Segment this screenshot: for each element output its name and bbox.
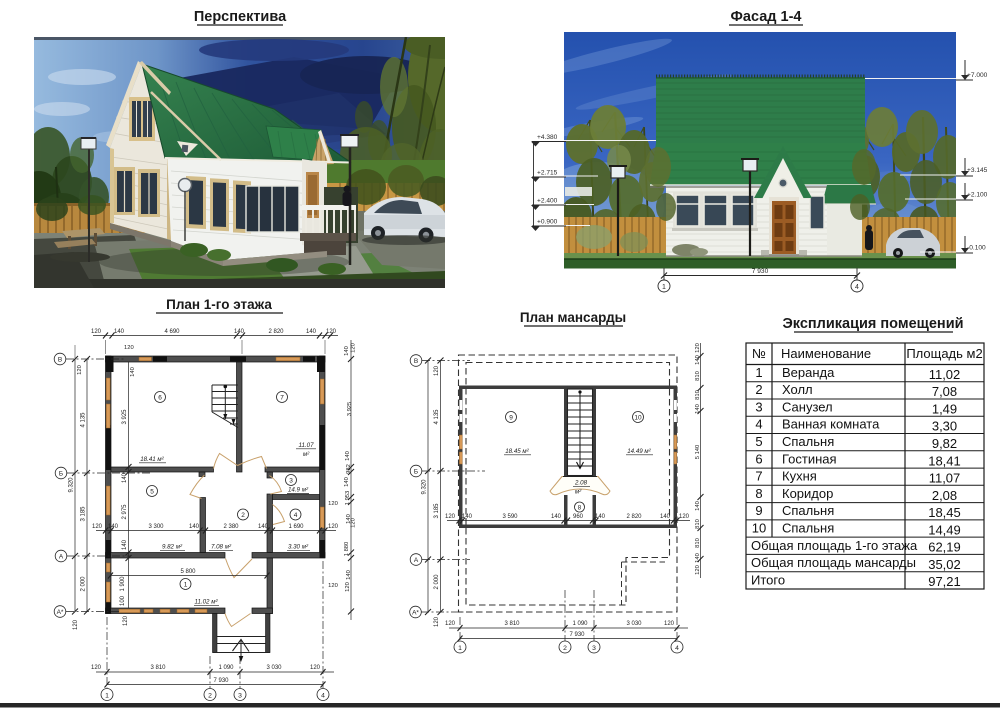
svg-text:140: 140 <box>345 451 351 461</box>
svg-text:4 135: 4 135 <box>434 409 440 425</box>
svg-text:8: 8 <box>755 486 762 501</box>
svg-text:11.07: 11.07 <box>298 442 314 449</box>
svg-text:140: 140 <box>344 477 350 487</box>
svg-text:2 000: 2 000 <box>434 574 440 590</box>
svg-text:3 185: 3 185 <box>434 503 440 519</box>
svg-text:11,07: 11,07 <box>929 471 961 486</box>
svg-text:Общая площадь 1-го этажа: Общая площадь 1-го этажа <box>751 538 918 553</box>
svg-text:9.320: 9.320 <box>422 479 428 495</box>
svg-text:1: 1 <box>105 692 109 699</box>
svg-text:9: 9 <box>509 415 513 422</box>
svg-text:140: 140 <box>189 524 200 530</box>
svg-text:2: 2 <box>241 512 245 519</box>
svg-text:3 810: 3 810 <box>504 621 520 627</box>
svg-text:120: 120 <box>77 365 83 375</box>
svg-text:4 135: 4 135 <box>81 412 87 428</box>
svg-text:10: 10 <box>752 520 766 535</box>
svg-text:+2.100: +2.100 <box>967 192 988 199</box>
svg-text:2 820: 2 820 <box>268 329 284 335</box>
svg-text:3 030: 3 030 <box>266 665 282 671</box>
svg-text:7.08 м²: 7.08 м² <box>211 544 232 551</box>
svg-text:3.30 м²: 3.30 м² <box>288 544 309 551</box>
svg-text:140: 140 <box>130 367 136 377</box>
svg-text:м²: м² <box>575 489 582 496</box>
svg-text:м²: м² <box>303 451 310 458</box>
svg-text:Спальня: Спальня <box>782 520 834 535</box>
svg-text:120: 120 <box>328 583 338 589</box>
svg-text:810: 810 <box>695 371 701 381</box>
svg-text:140: 140 <box>462 514 473 520</box>
svg-text:3: 3 <box>592 645 596 652</box>
svg-text:140: 140 <box>108 524 119 530</box>
svg-text:120: 120 <box>695 343 701 353</box>
svg-text:120: 120 <box>695 565 701 575</box>
svg-text:3: 3 <box>238 692 242 699</box>
svg-text:План мансарды: План мансарды <box>520 310 626 325</box>
svg-text:120: 120 <box>434 365 440 376</box>
svg-text:1 953: 1 953 <box>345 491 351 506</box>
svg-text:810: 810 <box>695 519 701 529</box>
svg-text:10: 10 <box>634 415 642 422</box>
svg-text:9.82 м²: 9.82 м² <box>162 544 183 551</box>
svg-text:Санузел: Санузел <box>782 400 833 415</box>
svg-text:140: 140 <box>695 501 701 511</box>
svg-text:120: 120 <box>326 329 337 335</box>
svg-text:Холл: Холл <box>782 382 813 397</box>
svg-text:3 810: 3 810 <box>150 665 166 671</box>
svg-text:1 690: 1 690 <box>288 524 304 530</box>
svg-text:120: 120 <box>91 665 102 671</box>
svg-text:7 930: 7 930 <box>213 678 229 684</box>
svg-text:4: 4 <box>294 512 298 519</box>
svg-text:2: 2 <box>563 645 567 652</box>
svg-text:140: 140 <box>346 570 352 580</box>
svg-text:1: 1 <box>662 284 666 291</box>
svg-text:2,08: 2,08 <box>932 488 957 503</box>
svg-text:6: 6 <box>755 451 762 466</box>
svg-text:810: 810 <box>695 390 701 400</box>
svg-text:+2.715: +2.715 <box>537 170 558 177</box>
svg-text:5 800: 5 800 <box>180 569 196 575</box>
svg-text:Перспектива: Перспектива <box>194 9 287 25</box>
svg-text:35,02: 35,02 <box>928 557 961 572</box>
svg-text:А*: А* <box>412 610 419 617</box>
svg-text:1 090: 1 090 <box>572 621 588 627</box>
svg-text:+7.000: +7.000 <box>967 72 988 79</box>
svg-text:18,45: 18,45 <box>928 505 961 520</box>
svg-text:18.45 м²: 18.45 м² <box>505 448 529 455</box>
svg-text:7: 7 <box>755 469 762 484</box>
svg-text:62,19: 62,19 <box>928 540 961 555</box>
svg-text:1: 1 <box>184 582 188 589</box>
svg-text:120: 120 <box>445 514 456 520</box>
svg-text:120: 120 <box>434 616 440 627</box>
svg-text:А*: А* <box>57 609 64 616</box>
svg-text:4: 4 <box>321 692 325 699</box>
svg-text:Кухня: Кухня <box>782 469 817 484</box>
svg-text:4: 4 <box>755 417 762 432</box>
svg-text:9: 9 <box>755 503 762 518</box>
svg-text:97,21: 97,21 <box>928 574 961 589</box>
svg-text:120: 120 <box>124 345 134 351</box>
svg-text:В: В <box>58 357 62 364</box>
svg-text:Экспликация помещений: Экспликация помещений <box>782 316 963 332</box>
svg-text:18.41 м²: 18.41 м² <box>140 456 164 463</box>
svg-text:3,30: 3,30 <box>932 419 957 434</box>
svg-text:3: 3 <box>289 478 293 485</box>
svg-text:+0.900: +0.900 <box>537 219 558 226</box>
svg-text:2 820: 2 820 <box>626 514 642 520</box>
svg-text:1,49: 1,49 <box>932 402 957 417</box>
svg-text:18,41: 18,41 <box>928 453 961 468</box>
svg-text:120: 120 <box>310 665 321 671</box>
svg-text:Ванная комната: Ванная комната <box>782 417 880 432</box>
svg-text:4: 4 <box>855 284 859 291</box>
svg-text:3 925: 3 925 <box>122 409 128 425</box>
svg-text:2: 2 <box>755 382 762 397</box>
svg-text:120: 120 <box>91 329 102 335</box>
svg-text:9,82: 9,82 <box>932 436 957 451</box>
svg-text:14,49: 14,49 <box>928 522 961 537</box>
svg-text:3 300: 3 300 <box>148 524 164 530</box>
svg-text:-0.100: -0.100 <box>967 245 986 252</box>
svg-text:140: 140 <box>695 355 701 365</box>
svg-text:Площадь м2: Площадь м2 <box>906 346 982 361</box>
svg-text:1: 1 <box>458 645 462 652</box>
svg-text:№: № <box>752 346 766 361</box>
svg-text:8: 8 <box>578 504 582 511</box>
svg-text:140: 140 <box>306 329 317 335</box>
svg-text:Наименование: Наименование <box>781 346 871 361</box>
svg-text:120: 120 <box>351 518 357 528</box>
svg-text:Б: Б <box>59 471 63 478</box>
svg-text:14.9 м²: 14.9 м² <box>288 487 309 494</box>
svg-text:Б: Б <box>414 469 418 476</box>
svg-text:Фасад 1-4: Фасад 1-4 <box>731 9 802 25</box>
svg-text:120: 120 <box>328 524 339 530</box>
svg-text:4 690: 4 690 <box>164 329 180 335</box>
svg-text:140: 140 <box>258 524 269 530</box>
svg-text:120: 120 <box>92 524 103 530</box>
svg-text:+4.380: +4.380 <box>537 134 558 141</box>
svg-text:2.08: 2.08 <box>574 480 588 487</box>
svg-text:140: 140 <box>122 472 128 483</box>
svg-text:140: 140 <box>660 514 671 520</box>
svg-text:План 1-го этажа: План 1-го этажа <box>166 297 272 312</box>
svg-text:3 030: 3 030 <box>626 621 642 627</box>
svg-text:7 930: 7 930 <box>752 268 769 275</box>
svg-text:120: 120 <box>445 621 456 627</box>
svg-text:1 880: 1 880 <box>344 542 350 557</box>
svg-text:120: 120 <box>123 615 129 626</box>
svg-text:Коридор: Коридор <box>782 486 833 501</box>
svg-text:140: 140 <box>234 329 245 335</box>
svg-text:960: 960 <box>573 514 584 520</box>
svg-text:Спальня: Спальня <box>782 434 834 449</box>
svg-text:9.320: 9.320 <box>69 477 75 493</box>
svg-text:А: А <box>59 554 64 561</box>
svg-text:982: 982 <box>346 464 352 474</box>
svg-text:2: 2 <box>208 692 212 699</box>
svg-text:7 930: 7 930 <box>569 632 585 638</box>
svg-text:2 975: 2 975 <box>122 504 128 520</box>
svg-text:5: 5 <box>150 489 154 496</box>
svg-text:+3.145: +3.145 <box>967 167 988 174</box>
svg-text:5 140: 5 140 <box>695 445 701 460</box>
svg-text:3: 3 <box>755 400 762 415</box>
svg-text:6: 6 <box>158 395 162 402</box>
svg-text:140: 140 <box>344 346 350 356</box>
svg-text:120: 120 <box>664 621 675 627</box>
svg-text:100: 100 <box>120 595 126 606</box>
svg-text:140: 140 <box>551 514 562 520</box>
svg-text:Веранда: Веранда <box>782 365 835 380</box>
svg-text:120: 120 <box>328 501 338 507</box>
svg-text:4: 4 <box>675 645 679 652</box>
svg-text:120: 120 <box>351 343 357 353</box>
svg-text:1: 1 <box>755 365 762 380</box>
svg-text:+2.400: +2.400 <box>537 198 558 205</box>
svg-text:810: 810 <box>695 538 701 548</box>
svg-text:Спальня: Спальня <box>782 503 834 518</box>
svg-text:140: 140 <box>122 539 128 550</box>
svg-text:Гостиная: Гостиная <box>782 451 837 466</box>
svg-text:2 000: 2 000 <box>81 576 87 592</box>
svg-text:3 925: 3 925 <box>347 402 353 417</box>
svg-text:В: В <box>414 358 418 365</box>
svg-text:140: 140 <box>114 329 125 335</box>
svg-text:7: 7 <box>280 395 284 402</box>
svg-text:1 900: 1 900 <box>120 576 126 592</box>
svg-text:120: 120 <box>73 619 79 630</box>
svg-text:7,08: 7,08 <box>932 384 957 399</box>
svg-text:1 090: 1 090 <box>218 665 234 671</box>
svg-text:3 185: 3 185 <box>81 506 87 522</box>
svg-text:5: 5 <box>755 434 762 449</box>
svg-text:2 380: 2 380 <box>223 524 239 530</box>
svg-text:120: 120 <box>679 514 690 520</box>
svg-text:14.49 м²: 14.49 м² <box>627 448 651 455</box>
svg-text:140: 140 <box>595 514 606 520</box>
svg-text:120: 120 <box>345 582 351 592</box>
svg-text:Итого: Итого <box>751 573 785 588</box>
svg-text:А: А <box>414 557 419 564</box>
svg-text:140: 140 <box>695 553 701 563</box>
svg-text:11,02: 11,02 <box>929 367 961 382</box>
svg-text:140: 140 <box>695 404 701 414</box>
svg-text:Общая площадь мансарды: Общая площадь мансарды <box>751 555 916 570</box>
svg-text:3 590: 3 590 <box>502 514 518 520</box>
svg-text:11.02 м²: 11.02 м² <box>194 599 218 606</box>
